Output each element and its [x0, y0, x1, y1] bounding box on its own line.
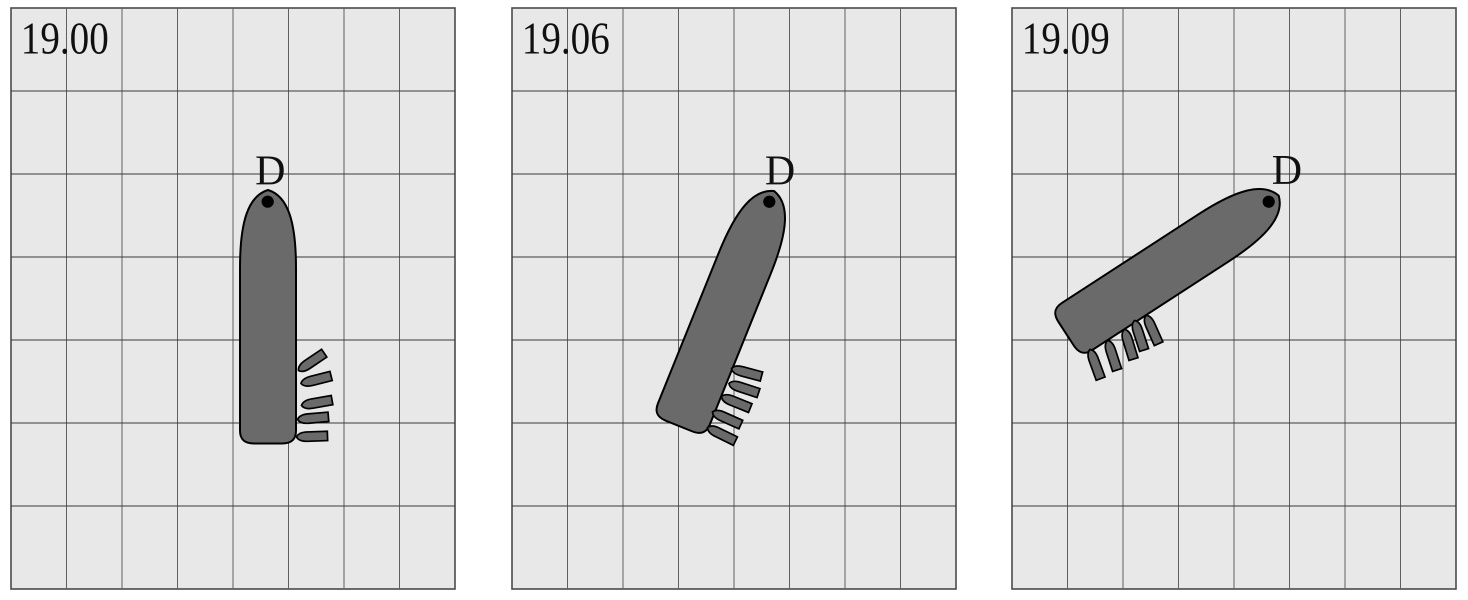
svg-text:D: D: [1272, 148, 1302, 194]
svg-text:19.09: 19.09: [1022, 14, 1110, 64]
svg-text:D: D: [255, 149, 285, 195]
svg-text:19.06: 19.06: [522, 14, 610, 64]
svg-text:D: D: [765, 149, 795, 195]
svg-text:19.00: 19.00: [21, 14, 109, 64]
